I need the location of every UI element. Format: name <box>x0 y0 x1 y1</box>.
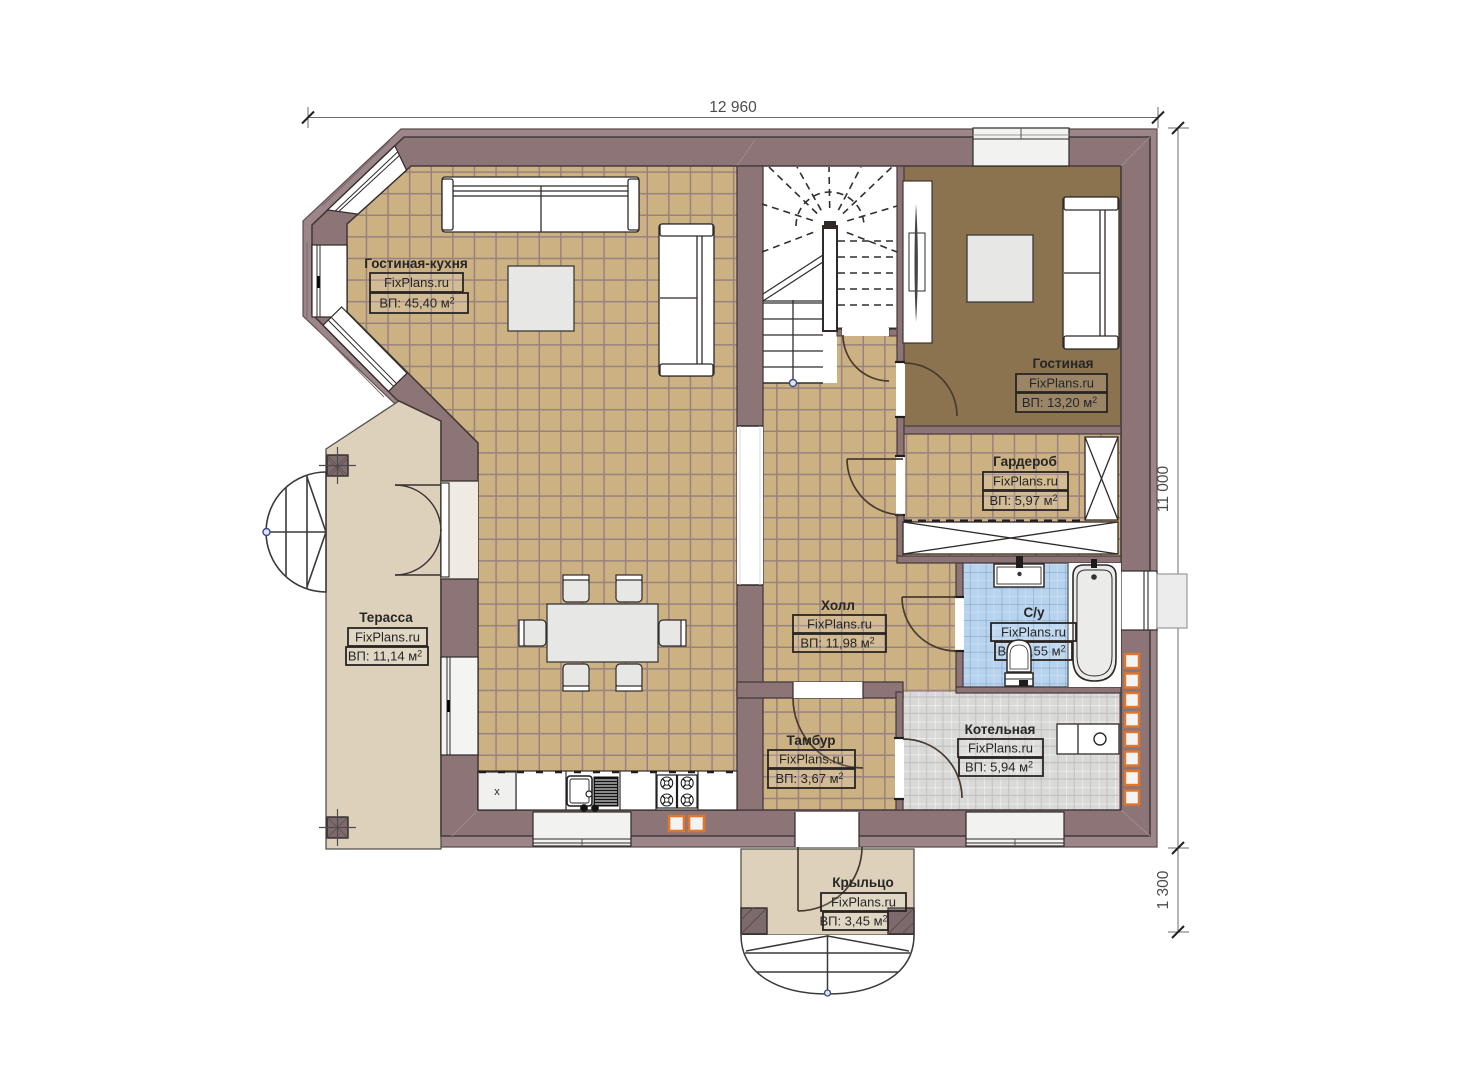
svg-text:FixPlans.ru: FixPlans.ru <box>993 474 1058 489</box>
svg-text:Котельная: Котельная <box>965 722 1036 737</box>
svg-text:ВП: 5,97 м2: ВП: 5,97 м2 <box>989 493 1057 508</box>
svg-text:Гардероб: Гардероб <box>993 454 1057 469</box>
svg-text:Крыльцо: Крыльцо <box>832 875 893 890</box>
svg-text:FixPlans.ru: FixPlans.ru <box>1001 625 1066 640</box>
svg-text:FixPlans.ru: FixPlans.ru <box>807 617 872 632</box>
svg-text:Холл: Холл <box>821 598 855 613</box>
svg-text:ВП: 11,14 м2: ВП: 11,14 м2 <box>348 649 422 664</box>
svg-text:FixPlans.ru: FixPlans.ru <box>384 275 449 290</box>
svg-text:ВП: 11,98 м2: ВП: 11,98 м2 <box>800 636 874 651</box>
svg-text:FixPlans.ru: FixPlans.ru <box>1029 376 1094 391</box>
svg-text:FixPlans.ru: FixPlans.ru <box>779 752 844 767</box>
svg-text:ВП: 45,40 м2: ВП: 45,40 м2 <box>379 296 454 311</box>
svg-text:FixPlans.ru: FixPlans.ru <box>831 895 896 910</box>
svg-text:12 960: 12 960 <box>709 99 757 116</box>
svg-text:ВП: 3,45 м2: ВП: 3,45 м2 <box>819 914 887 929</box>
svg-text:Тамбур: Тамбур <box>787 733 836 748</box>
svg-text:Гостиная-кухня: Гостиная-кухня <box>364 256 467 271</box>
svg-text:Гостиная: Гостиная <box>1032 356 1093 371</box>
svg-text:1 300: 1 300 <box>1155 870 1172 909</box>
svg-text:FixPlans.ru: FixPlans.ru <box>968 741 1033 756</box>
svg-text:С/у: С/у <box>1023 605 1045 620</box>
svg-text:x: x <box>494 786 500 798</box>
svg-text:FixPlans.ru: FixPlans.ru <box>355 630 420 645</box>
svg-text:ВП: 13,20 м2: ВП: 13,20 м2 <box>1022 395 1097 410</box>
svg-text:ВП: 5,94 м2: ВП: 5,94 м2 <box>965 760 1033 775</box>
svg-text:ВП: 3,67 м2: ВП: 3,67 м2 <box>775 771 843 786</box>
svg-text:Терасса: Терасса <box>359 610 413 625</box>
